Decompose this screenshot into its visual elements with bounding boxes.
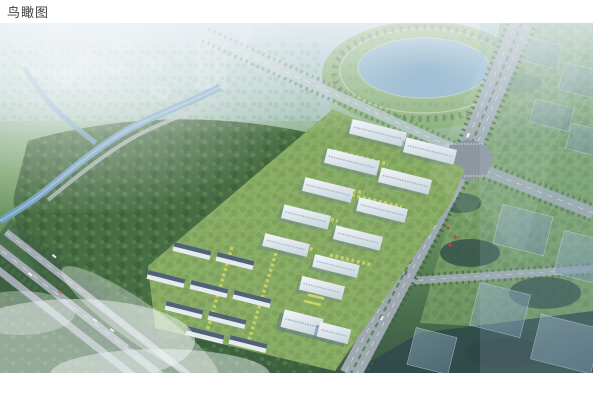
aerial-view-figure [0,23,593,373]
mist-clouds [0,23,593,373]
aerial-render-canvas [0,23,593,373]
page-title: 鸟瞰图 [7,5,49,21]
